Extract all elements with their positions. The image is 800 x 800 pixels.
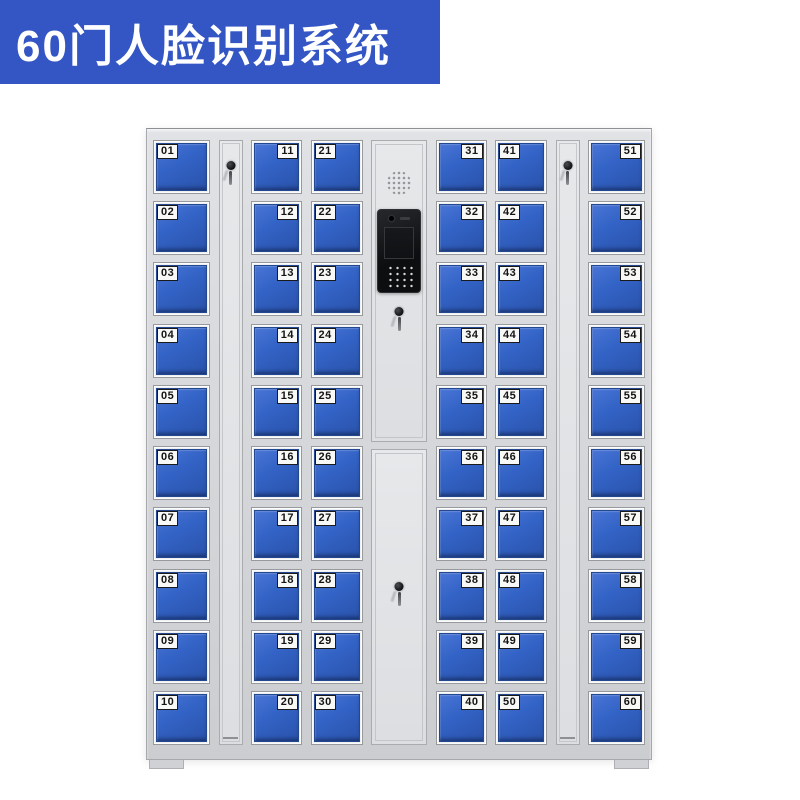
- door-number-label: 51: [620, 144, 641, 159]
- keyhole-icon: [395, 307, 404, 316]
- door-number-label: 03: [157, 266, 178, 281]
- locker-door-cell: 33: [436, 262, 487, 316]
- key-icon: [398, 592, 401, 606]
- face-recognition-panel: [377, 209, 421, 293]
- door-number-label: 40: [461, 695, 482, 710]
- key-icon: [222, 170, 228, 181]
- locker-door-cell: 53: [588, 262, 645, 316]
- locker-door-cell: 43: [495, 262, 547, 316]
- locker-door-cell: 55: [588, 385, 645, 439]
- door-number-label: 18: [277, 573, 298, 588]
- strip-slot: [560, 737, 575, 739]
- locker-door-cell: 32: [436, 201, 487, 255]
- door-number-label: 14: [277, 328, 298, 343]
- locker-door-cell: 08: [153, 569, 210, 623]
- key-icon: [390, 591, 396, 602]
- locker-key-strip-right: [556, 140, 580, 745]
- locker-column-51-60: 51525354555657585960: [588, 140, 645, 745]
- door-number-label: 52: [620, 205, 641, 220]
- control-door: [371, 140, 427, 442]
- locker-door-cell: 23: [311, 262, 363, 316]
- door-number-label: 05: [157, 389, 178, 404]
- key-icon: [566, 171, 569, 185]
- key-icon: [390, 316, 396, 327]
- locker-door-cell: 13: [251, 262, 302, 316]
- locker-door-cell: 28: [311, 569, 363, 623]
- keyhole-icon: [226, 161, 235, 170]
- door-number-label: 55: [620, 389, 641, 404]
- locker-door-cell: 40: [436, 691, 487, 745]
- door-number-label: 22: [315, 205, 336, 220]
- locker-door-cell: 02: [153, 201, 210, 255]
- door-number-label: 46: [499, 450, 520, 465]
- door-number-label: 32: [461, 205, 482, 220]
- locker-door-cell: 18: [251, 569, 302, 623]
- locker-door-cell: 44: [495, 324, 547, 378]
- locker-door-cell: 01: [153, 140, 210, 194]
- door-number-label: 16: [277, 450, 298, 465]
- locker-column-21-30: 21222324252627282930: [311, 140, 363, 745]
- locker-door-cell: 45: [495, 385, 547, 439]
- locker-door-cell: 35: [436, 385, 487, 439]
- keypad: [386, 264, 413, 288]
- door-number-label: 44: [499, 328, 520, 343]
- door-number-label: 29: [315, 634, 336, 649]
- door-number-label: 13: [277, 266, 298, 281]
- locker-door-cell: 07: [153, 507, 210, 561]
- locker-door-cell: 20: [251, 691, 302, 745]
- locker-door-cell: 41: [495, 140, 547, 194]
- door-number-label: 31: [461, 144, 482, 159]
- camera-icon: [389, 216, 394, 221]
- locker-door-cell: 46: [495, 446, 547, 500]
- locker-door-cell: 16: [251, 446, 302, 500]
- door-number-label: 39: [461, 634, 482, 649]
- keyhole-icon: [395, 582, 404, 591]
- door-number-label: 43: [499, 266, 520, 281]
- door-number-label: 50: [499, 695, 520, 710]
- locker-key-strip-left: [219, 140, 243, 745]
- locker-door-cell: 34: [436, 324, 487, 378]
- locker-door-cell: 10: [153, 691, 210, 745]
- door-number-label: 12: [277, 205, 298, 220]
- locker-door-cell: 14: [251, 324, 302, 378]
- locker-door-cell: 60: [588, 691, 645, 745]
- center-storage-door: [371, 449, 427, 745]
- door-number-label: 02: [157, 205, 178, 220]
- door-number-label: 19: [277, 634, 298, 649]
- locker-door-cell: 52: [588, 201, 645, 255]
- locker-column-01-10: 01020304050607080910: [153, 140, 210, 745]
- locker-door-cell: 04: [153, 324, 210, 378]
- locker-door-cell: 21: [311, 140, 363, 194]
- keylock: [391, 582, 407, 616]
- locker-door-cell: 36: [436, 446, 487, 500]
- door-number-label: 54: [620, 328, 641, 343]
- locker-door-cell: 29: [311, 630, 363, 684]
- locker-door-cell: 47: [495, 507, 547, 561]
- locker-door-cell: 58: [588, 569, 645, 623]
- locker-door-cell: 49: [495, 630, 547, 684]
- locker-door-cell: 50: [495, 691, 547, 745]
- locker-door-cell: 15: [251, 385, 302, 439]
- locker-door-cell: 25: [311, 385, 363, 439]
- locker-door-cell: 06: [153, 446, 210, 500]
- door-number-label: 23: [315, 266, 336, 281]
- banner-title: 60门人脸识别系统: [16, 10, 391, 74]
- locker-door-cell: 03: [153, 262, 210, 316]
- door-number-label: 60: [620, 695, 641, 710]
- door-number-label: 04: [157, 328, 178, 343]
- locker-door-cell: 22: [311, 201, 363, 255]
- door-number-label: 36: [461, 450, 482, 465]
- locker-column-41-50: 41424344454647484950: [495, 140, 547, 745]
- door-number-label: 10: [157, 695, 178, 710]
- key-icon: [398, 317, 401, 331]
- keylock: [223, 161, 239, 195]
- speaker-grille-icon: [387, 171, 411, 195]
- keyhole-icon: [563, 161, 572, 170]
- door-number-label: 07: [157, 511, 178, 526]
- door-number-label: 45: [499, 389, 520, 404]
- key-icon: [559, 170, 565, 181]
- locker-door-cell: 17: [251, 507, 302, 561]
- locker-column-31-40: 31323334353637383940: [436, 140, 487, 745]
- key-icon: [229, 171, 232, 185]
- display-screen: [384, 227, 414, 259]
- keylock: [391, 307, 407, 341]
- locker-door-cell: 12: [251, 201, 302, 255]
- door-number-label: 48: [499, 573, 520, 588]
- locker-column-11-20: 11121314151617181920: [251, 140, 302, 745]
- door-number-label: 17: [277, 511, 298, 526]
- door-number-label: 33: [461, 266, 482, 281]
- door-number-label: 09: [157, 634, 178, 649]
- door-number-label: 53: [620, 266, 641, 281]
- locker-door-cell: 51: [588, 140, 645, 194]
- door-number-label: 01: [157, 144, 178, 159]
- door-number-label: 41: [499, 144, 520, 159]
- locker-door-cell: 54: [588, 324, 645, 378]
- door-number-label: 35: [461, 389, 482, 404]
- door-number-label: 58: [620, 573, 641, 588]
- locker-door-cell: 37: [436, 507, 487, 561]
- locker-door-cell: 24: [311, 324, 363, 378]
- door-number-label: 47: [499, 511, 520, 526]
- product-photo: 60门人脸识别系统 010203040506070809101112131415…: [0, 0, 800, 800]
- door-number-label: 06: [157, 450, 178, 465]
- door-number-label: 15: [277, 389, 298, 404]
- keylock: [560, 161, 576, 195]
- door-number-label: 21: [315, 144, 336, 159]
- door-number-label: 57: [620, 511, 641, 526]
- door-number-label: 59: [620, 634, 641, 649]
- door-number-label: 28: [315, 573, 336, 588]
- door-number-label: 24: [315, 328, 336, 343]
- door-number-label: 49: [499, 634, 520, 649]
- locker-door-cell: 48: [495, 569, 547, 623]
- door-number-label: 27: [315, 511, 336, 526]
- door-number-label: 20: [277, 695, 298, 710]
- door-number-label: 42: [499, 205, 520, 220]
- locker-cabinet-body: 0102030405060708091011121314151617181920…: [153, 140, 645, 745]
- door-number-label: 30: [315, 695, 336, 710]
- locker-door-cell: 57: [588, 507, 645, 561]
- sensor-slot: [400, 217, 410, 220]
- locker-door-cell: 11: [251, 140, 302, 194]
- locker-door-cell: 27: [311, 507, 363, 561]
- door-number-label: 25: [315, 389, 336, 404]
- locker-cabinet: 0102030405060708091011121314151617181920…: [146, 128, 652, 760]
- locker-door-cell: 30: [311, 691, 363, 745]
- cabinet-foot-right: [614, 760, 649, 769]
- door-number-label: 26: [315, 450, 336, 465]
- locker-door-cell: 19: [251, 630, 302, 684]
- door-number-label: 37: [461, 511, 482, 526]
- locker-door-cell: 39: [436, 630, 487, 684]
- locker-door-cell: 38: [436, 569, 487, 623]
- locker-door-cell: 09: [153, 630, 210, 684]
- locker-door-cell: 31: [436, 140, 487, 194]
- cabinet-foot-left: [149, 760, 184, 769]
- locker-door-cell: 26: [311, 446, 363, 500]
- door-number-label: 08: [157, 573, 178, 588]
- camera-row: [378, 216, 420, 224]
- door-number-label: 11: [277, 144, 298, 159]
- title-banner: 60门人脸识别系统: [0, 0, 440, 84]
- locker-door-cell: 05: [153, 385, 210, 439]
- locker-door-cell: 56: [588, 446, 645, 500]
- door-number-label: 34: [461, 328, 482, 343]
- locker-door-cell: 59: [588, 630, 645, 684]
- locker-door-cell: 42: [495, 201, 547, 255]
- door-number-label: 38: [461, 573, 482, 588]
- strip-slot: [223, 737, 238, 739]
- door-number-label: 56: [620, 450, 641, 465]
- locker-control-column: [371, 140, 427, 745]
